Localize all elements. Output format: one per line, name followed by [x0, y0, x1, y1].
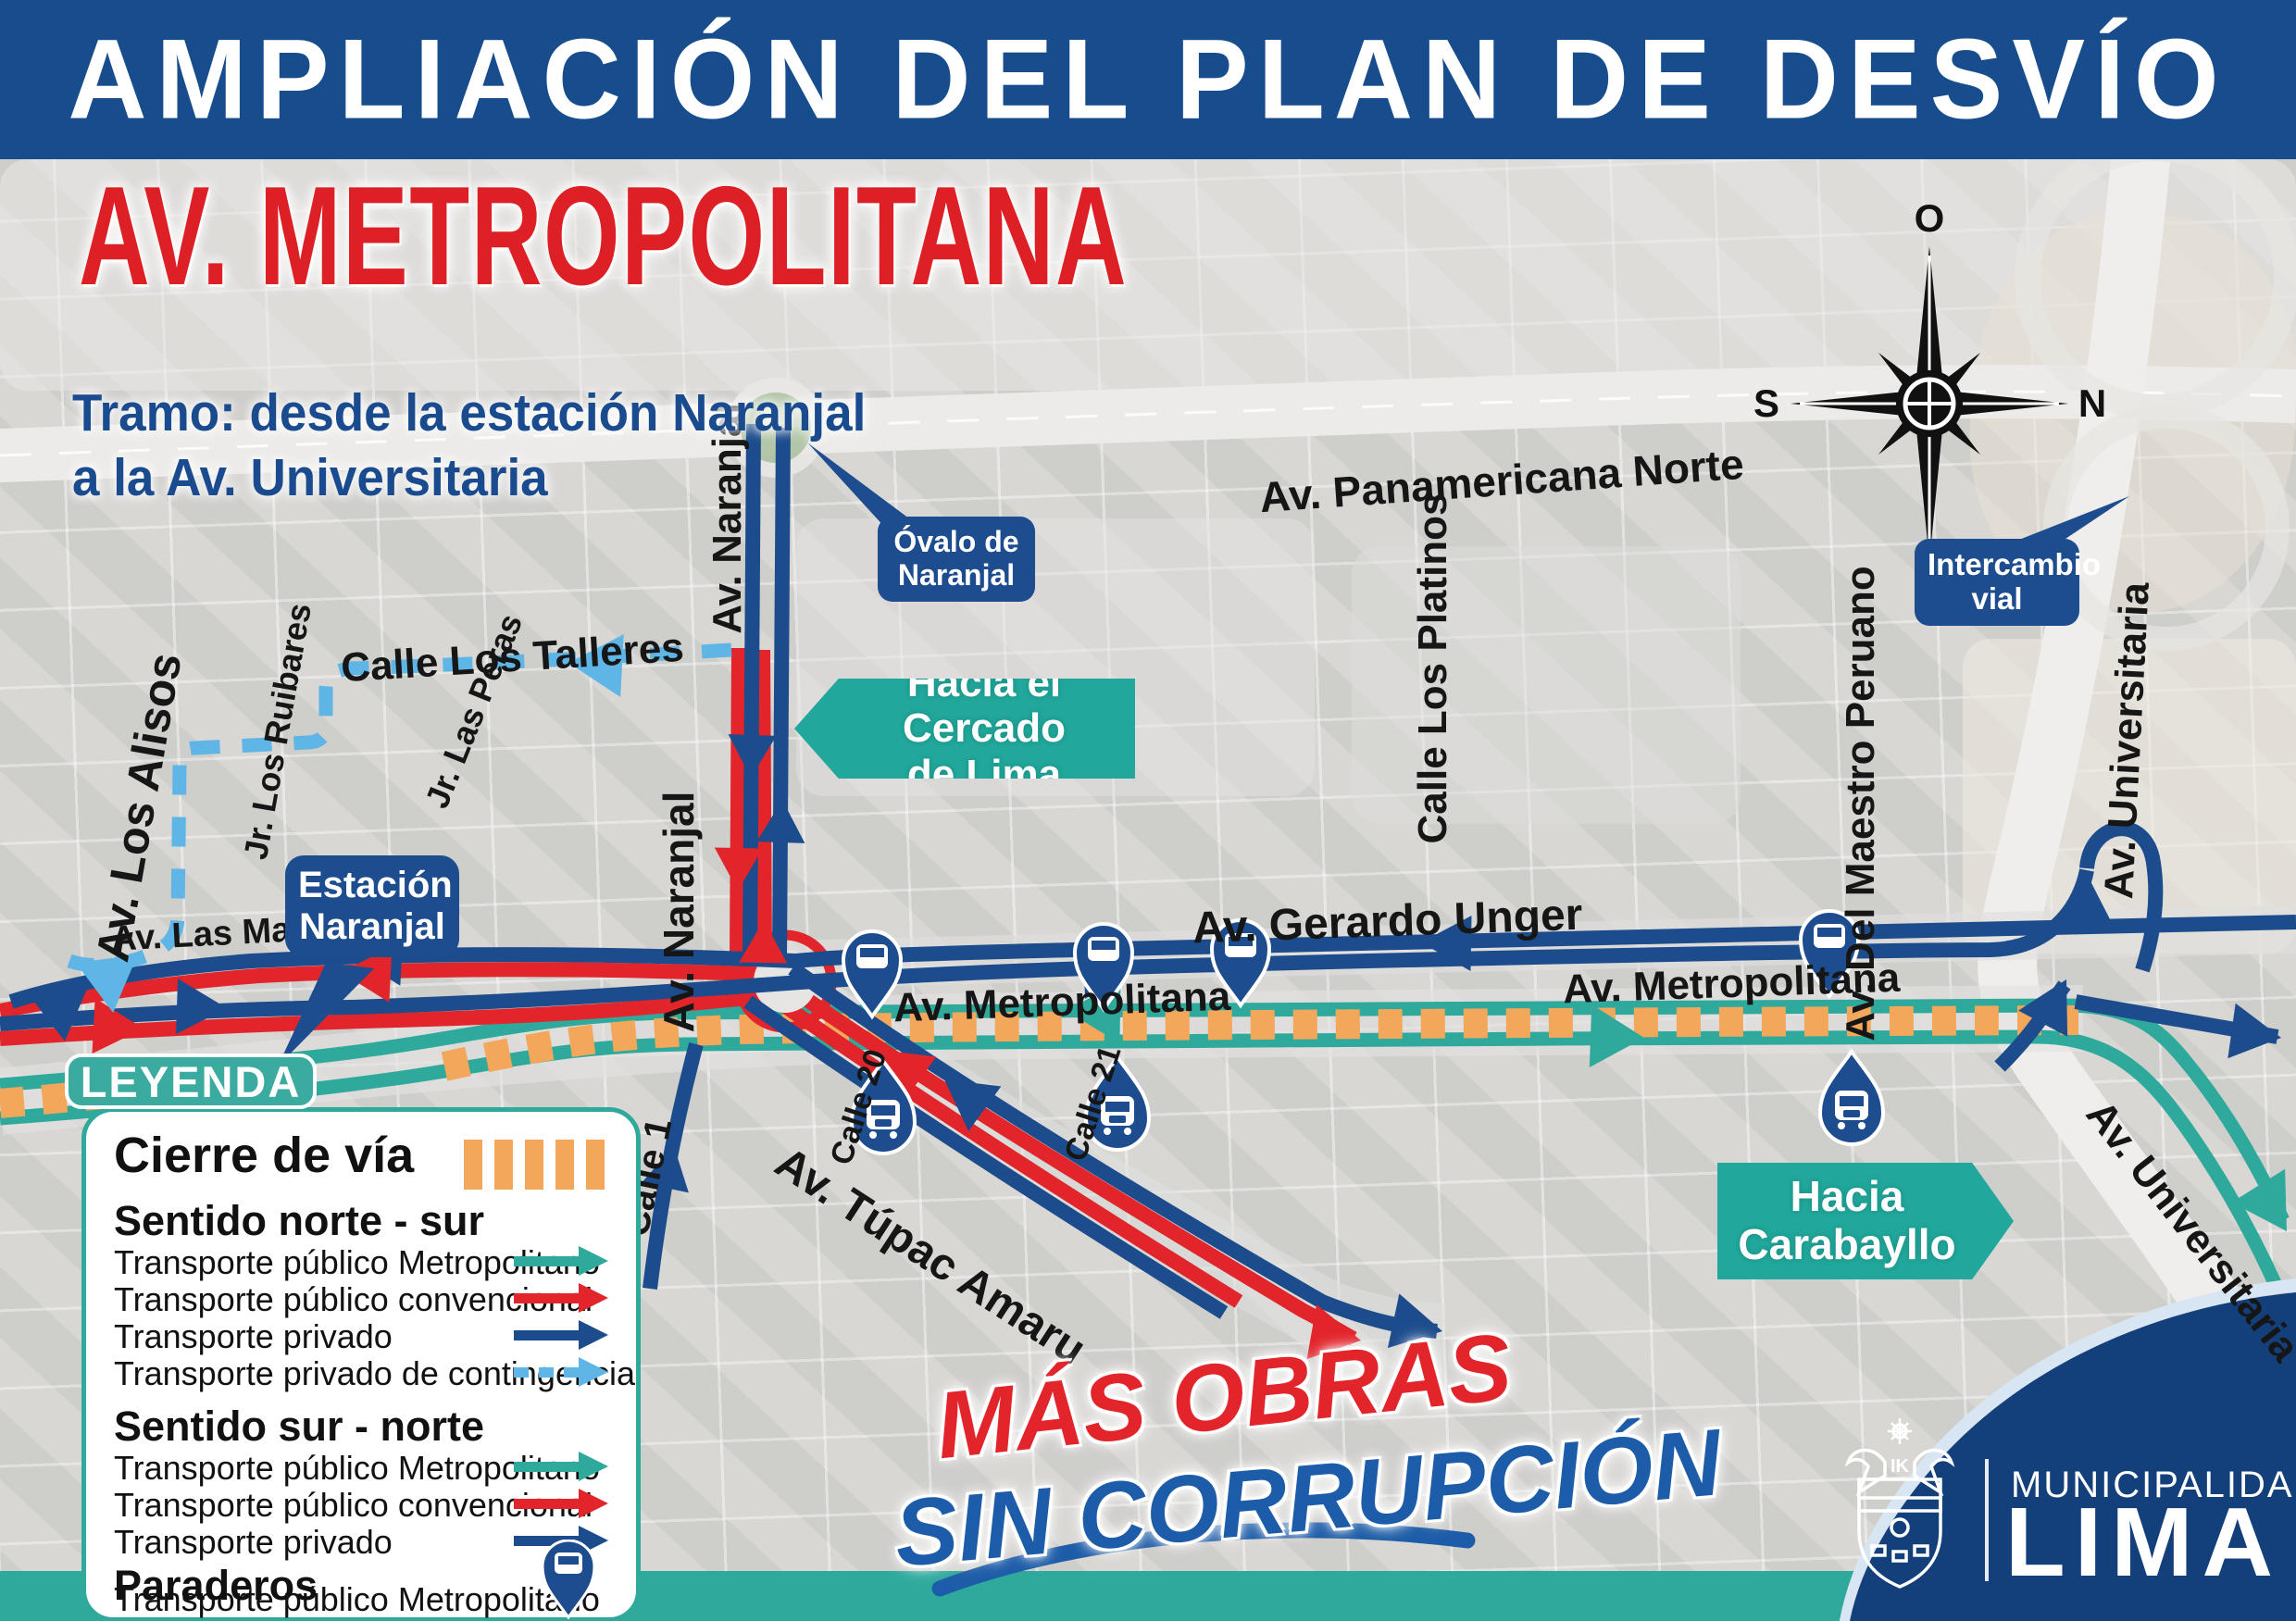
- compass-south-label: S: [1753, 381, 1779, 425]
- org-name-main: LIMA: [2005, 1487, 2282, 1599]
- street-label-los-platinos: Calle Los Platinos: [1410, 493, 1456, 844]
- ovalo-line2: Naranjal: [898, 558, 1015, 592]
- legend-closure-title: Cierre de vía: [114, 1127, 414, 1184]
- closure-dash-sample: [464, 1140, 605, 1190]
- teal-arrow-icon: [514, 1462, 580, 1472]
- estacion-line1: Estación: [298, 865, 453, 905]
- subtitle-line1: Tramo: desde la estación Naranjal: [72, 383, 866, 443]
- header-banner: AMPLIACIÓN DEL PLAN DE DESVÍO: [0, 0, 2296, 159]
- ovalo-line1: Óvalo de: [893, 525, 1018, 558]
- legend-item-label: Transporte privado: [114, 1523, 393, 1562]
- lightblue-dashed-arrow-icon: [514, 1367, 580, 1378]
- metro-stop-pin-icon: [1820, 1052, 1883, 1144]
- legend-sn-title: Sentido sur - norte: [114, 1403, 484, 1451]
- blue-arrow-icon: [514, 1330, 580, 1340]
- ovalo-naranjal-callout: Óvalo de Naranjal: [878, 517, 1035, 602]
- street-label-naranjal-mid: Av. Naranjal: [654, 792, 704, 1033]
- legend-item-label: Transporte público Metropolitano: [114, 1580, 600, 1619]
- estacion-naranjal-callout: Estación Naranjal: [285, 855, 459, 957]
- compass-west-label: O: [1915, 196, 1945, 240]
- hacia-carabayllo-banner: Hacia Carabayllo: [1717, 1163, 2014, 1279]
- bus-stop-pin-icon: [536, 1540, 601, 1621]
- estacion-line2: Naranjal: [299, 906, 445, 947]
- legend-tab: LEYENDA: [65, 1054, 317, 1109]
- page-subtitle: Tramo: desde la estación Naranjal a la A…: [72, 381, 866, 510]
- intercambio-vial-callout: Intercambio vial: [1915, 539, 2079, 626]
- legend-panel: Cierre de vía Sentido norte - sur Transp…: [81, 1107, 641, 1621]
- legend-item-label: Transporte privado: [114, 1317, 393, 1356]
- legend-ns-title: Sentido norte - sur: [114, 1197, 484, 1245]
- carabayllo-line1: Hacia: [1717, 1173, 1977, 1221]
- intercambio-line2: vial: [1971, 581, 2022, 616]
- hacia-cercado-banner: Hacia el Cercado de Lima: [794, 679, 1135, 779]
- poster-ampliacion-plan-desvio: O N S E IK Av. Panamericana Norte Cal: [0, 0, 2296, 1621]
- intercambio-line1: Intercambio: [1928, 547, 2101, 581]
- page-title: AV. METROPOLITANA: [79, 156, 1128, 318]
- header-banner-text: AMPLIACIÓN DEL PLAN DE DESVÍO: [68, 14, 2227, 144]
- red-arrow-icon: [514, 1293, 580, 1303]
- subtitle-line2: a la Av. Universitaria: [72, 448, 548, 507]
- teal-arrow-icon: [514, 1256, 580, 1266]
- compass-north-label: N: [2078, 381, 2106, 425]
- red-arrow-icon: [514, 1499, 580, 1509]
- carabayllo-line2: Carabayllo: [1717, 1221, 1977, 1269]
- svg-text:IK: IK: [1890, 1456, 1910, 1477]
